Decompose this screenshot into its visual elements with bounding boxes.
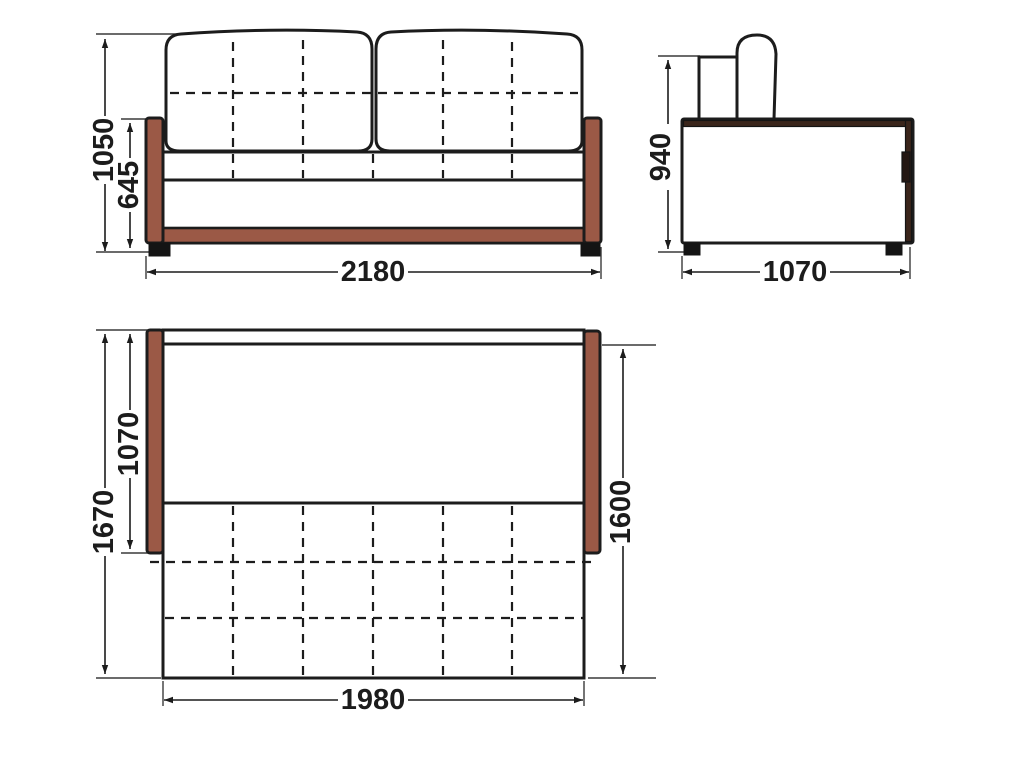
dim-label-overall-length: 1670 <box>88 490 120 555</box>
dim-label-overall-width: 2180 <box>341 256 406 288</box>
armrest-left-plan <box>147 330 163 553</box>
dim-label-seat-platform: 1070 <box>113 412 145 477</box>
dim-label-armrest-height: 645 <box>113 161 145 209</box>
armrest-right-plan <box>584 331 600 553</box>
top-wood-rail <box>684 121 912 127</box>
plan-view: 1670 1070 1600 1980 <box>88 330 656 716</box>
foot-rear <box>886 243 902 255</box>
back-cushion-left <box>166 30 372 151</box>
back-cushion-right <box>376 30 582 151</box>
dim-label-bed-length: 1600 <box>605 480 637 545</box>
foot-left <box>149 243 170 256</box>
dim-label-depth: 1070 <box>763 256 828 288</box>
foot-front <box>684 243 700 255</box>
backrest-profile <box>699 57 737 120</box>
front-view: 1050 645 2180 <box>88 30 601 288</box>
foot-right <box>581 243 600 256</box>
sofa-dimension-drawing: 1050 645 2180 <box>0 0 1024 768</box>
side-panel <box>682 119 913 243</box>
armrest-right <box>584 118 601 243</box>
dim-label-bed-width: 1980 <box>341 684 406 716</box>
bottom-wood-rail <box>163 228 584 243</box>
dim-label-backrest-height: 940 <box>645 133 677 181</box>
cushion-profile <box>737 35 776 119</box>
pull-handle <box>902 152 910 182</box>
side-view: 940 1070 <box>645 35 913 288</box>
armrest-left <box>146 118 163 243</box>
